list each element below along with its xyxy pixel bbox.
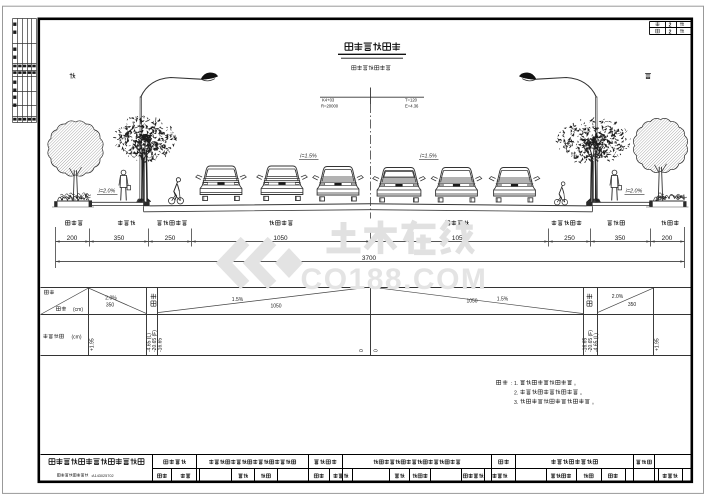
svg-text:1050: 1050 [273, 235, 288, 242]
svg-text:350: 350 [114, 235, 125, 242]
svg-text:i=1.5%: i=1.5% [420, 154, 437, 160]
svg-text:+1.95: +1.95 [655, 338, 661, 351]
svg-text:E=4.36: E=4.36 [405, 104, 419, 109]
svg-text:2.0%: 2.0% [612, 294, 624, 300]
svg-text:1.5%: 1.5% [232, 297, 244, 303]
svg-text:R=20000: R=20000 [321, 104, 339, 109]
svg-text:3.: 3. [514, 400, 518, 406]
svg-text:200: 200 [67, 235, 78, 242]
svg-text:1.5%: 1.5% [497, 297, 509, 303]
svg-text:2: 2 [669, 29, 672, 35]
svg-text:。: 。 [592, 400, 597, 406]
svg-text:350: 350 [106, 303, 115, 309]
svg-text:i=1.5%: i=1.5% [300, 154, 317, 160]
svg-text:2.: 2. [514, 391, 518, 397]
svg-text:CO188.COM: CO188.COM [301, 263, 488, 296]
svg-text:K4+03: K4+03 [322, 98, 335, 103]
svg-text:-16.65: -16.65 [157, 338, 163, 352]
svg-text:i=2.0%: i=2.0% [99, 189, 116, 195]
svg-text:3700: 3700 [362, 255, 377, 262]
svg-text:1050: 1050 [270, 304, 281, 310]
svg-text:。: 。 [580, 391, 585, 397]
svg-text:。: 。 [574, 381, 579, 387]
svg-text:1.: 1. [514, 381, 518, 387]
svg-text:-4.65 (L): -4.65 (L) [594, 333, 600, 352]
svg-text:2: 2 [669, 22, 672, 28]
svg-text:0: 0 [374, 349, 380, 352]
svg-text::A143025702: :A143025702 [91, 474, 114, 478]
svg-text:350: 350 [615, 235, 626, 242]
svg-text:250: 250 [564, 235, 575, 242]
svg-text:250: 250 [165, 235, 176, 242]
svg-text:i=2.0%: i=2.0% [626, 189, 643, 195]
svg-text:1050: 1050 [466, 299, 477, 305]
svg-text:2.0%: 2.0% [105, 296, 117, 302]
svg-text:T=120: T=120 [405, 98, 418, 103]
svg-text:0: 0 [359, 349, 365, 352]
svg-text:+1.95: +1.95 [90, 338, 96, 351]
svg-text:200: 200 [662, 235, 673, 242]
svg-text:(cm): (cm) [72, 335, 82, 341]
svg-text::: : [511, 381, 513, 387]
svg-text:(cm): (cm) [73, 307, 83, 313]
svg-text:350: 350 [628, 302, 637, 308]
